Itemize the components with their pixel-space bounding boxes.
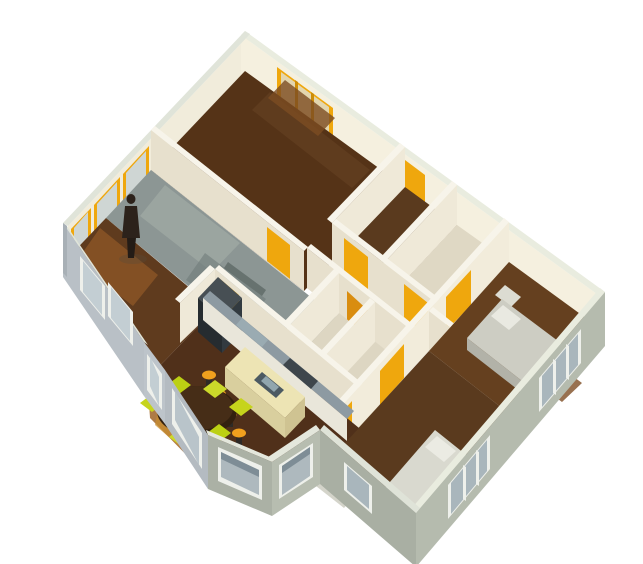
se-window-1-mullion-1 — [566, 344, 569, 380]
person-torso — [122, 206, 140, 238]
floorplan-render-page — [0, 0, 643, 564]
west-corner-edge — [63, 223, 67, 277]
stool-4-seat — [232, 429, 246, 438]
se-window-2-mullion-2 — [463, 465, 466, 501]
se-window-2-mullion-1 — [476, 450, 479, 486]
se-window-1-mullion-2 — [553, 359, 556, 395]
house-3d-floorplan — [0, 0, 643, 564]
person-head — [127, 194, 136, 204]
stool-1-seat — [202, 371, 216, 380]
